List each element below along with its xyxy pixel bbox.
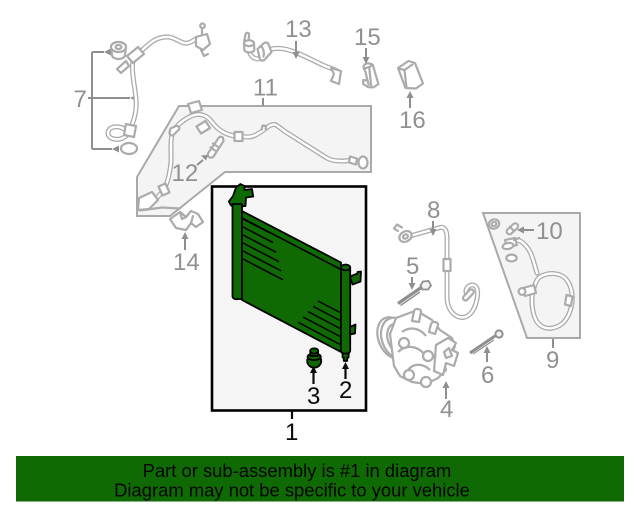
svg-text:6: 6 — [481, 362, 494, 389]
svg-text:4: 4 — [440, 396, 453, 423]
svg-text:7: 7 — [74, 86, 87, 113]
svg-text:15: 15 — [354, 24, 381, 51]
svg-text:9: 9 — [546, 347, 559, 374]
svg-text:13: 13 — [285, 16, 312, 43]
svg-text:1: 1 — [285, 419, 298, 446]
svg-text:Part or sub-assembly is #1 in: Part or sub-assembly is #1 in diagram — [143, 460, 452, 481]
svg-text:10: 10 — [536, 218, 563, 245]
svg-text:Diagram may not be specific to: Diagram may not be specific to your vehi… — [114, 480, 470, 501]
svg-text:8: 8 — [427, 197, 440, 224]
svg-text:3: 3 — [307, 383, 320, 410]
svg-text:11: 11 — [253, 75, 278, 102]
svg-text:12: 12 — [172, 160, 199, 187]
svg-text:14: 14 — [173, 249, 200, 276]
svg-text:5: 5 — [406, 253, 419, 280]
svg-text:16: 16 — [399, 107, 426, 134]
svg-text:2: 2 — [339, 377, 352, 404]
